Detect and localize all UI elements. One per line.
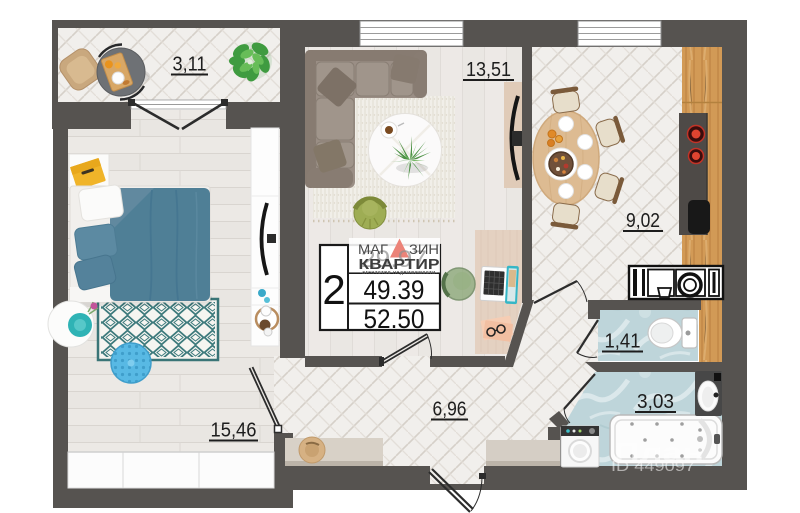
svg-text:6,96: 6,96 xyxy=(433,399,467,421)
svg-text:2: 2 xyxy=(322,266,345,313)
svg-text:9,02: 9,02 xyxy=(626,210,660,232)
svg-text:МАГ: МАГ xyxy=(358,241,388,257)
svg-text:3,11: 3,11 xyxy=(173,54,207,76)
svg-text:1,41: 1,41 xyxy=(605,331,641,353)
svg-text:-агентство недвижимости-: -агентство недвижимости- xyxy=(360,270,438,276)
svg-text:ID 449097: ID 449097 xyxy=(611,459,695,475)
svg-text:13,51: 13,51 xyxy=(466,59,511,81)
svg-text:3,03: 3,03 xyxy=(637,391,674,413)
svg-text:15,46: 15,46 xyxy=(211,420,257,442)
svg-text:49.39: 49.39 xyxy=(364,275,425,305)
svg-text:52.50: 52.50 xyxy=(364,304,425,334)
svg-text:ЗИН: ЗИН xyxy=(409,241,439,257)
